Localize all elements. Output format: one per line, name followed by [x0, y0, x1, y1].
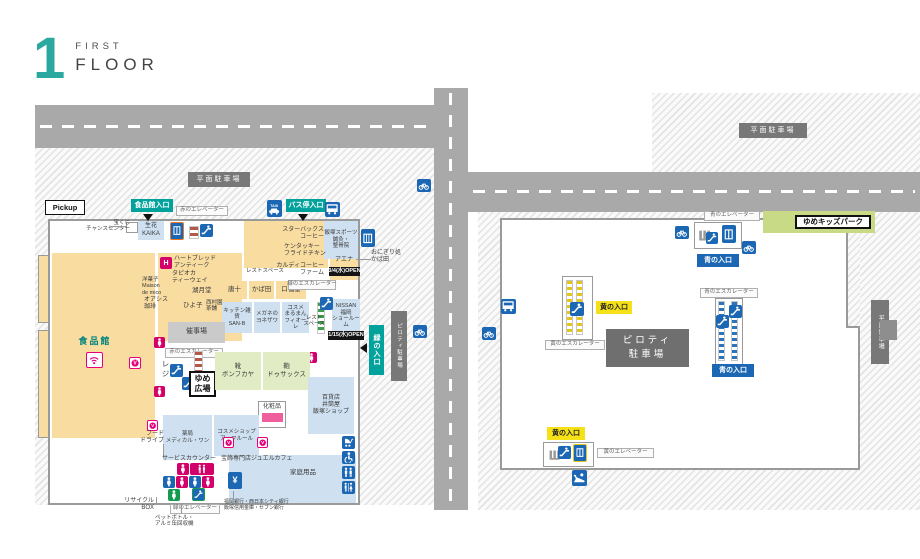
label-recyclebox: リサイクル BOX	[118, 498, 154, 511]
parking-label-west-text: 平面駐車場	[197, 176, 242, 184]
yume-plaza-text: ゆめ 広場	[195, 374, 211, 393]
pickup-label: Pickup	[45, 200, 85, 215]
atm-icon-glyph: ¥	[232, 476, 237, 485]
structure-box	[880, 320, 897, 340]
store-dusacks-text: 鞄 ドゥサックス	[267, 363, 306, 378]
entrance-green-text: 緑の入口	[373, 334, 380, 366]
ramp-icon	[572, 470, 587, 486]
open-badge-aena-text: 3/4(水)OPEN	[328, 269, 360, 275]
store-nissan-text: NISSAN 福岡 ショールーム	[332, 303, 360, 329]
label-oasis: オアシス 珈琲	[144, 297, 176, 310]
kids-park-label-text: ゆめキッズパーク	[803, 218, 863, 226]
toilet-icon	[342, 481, 355, 494]
floor-title-first: FIRST	[75, 41, 159, 52]
entrance-blue-north-text: 青の入口	[704, 257, 732, 264]
floor-title-floor: FLOOR	[75, 55, 159, 75]
green-elevator-icon	[192, 488, 205, 501]
label-heartbread: ハートブレッド アンティーク	[174, 256, 224, 269]
building-notch	[846, 233, 860, 328]
entrance-foodhall-text: 食品館入口	[135, 202, 170, 209]
wheelchair-icon	[342, 451, 355, 464]
food-hall-label: 食品館	[72, 336, 118, 348]
parking-label-northeast: 平面駐車場	[739, 123, 807, 138]
heartbread-logo: H	[160, 257, 172, 269]
label-jewelcafe: 宝飾専門店ジュエルカフェ	[221, 456, 293, 464]
bicycle-icon	[675, 226, 689, 239]
parking-label-northeast-text: 平面駐車場	[751, 127, 796, 135]
piloti-parking-label: ピロティ 駐車場	[606, 329, 689, 367]
label-heartbread-text: ハートブレッド アンティーク	[174, 256, 224, 270]
yellow-escalator-label: 黄のエスカレーター	[545, 340, 605, 350]
service-icon	[190, 463, 214, 475]
piloti-parking-label-side: ピロティ駐車場	[391, 311, 407, 381]
v-mark-icon	[129, 357, 141, 369]
label-recyclebox-text: リサイクル BOX	[118, 498, 154, 512]
label-fooddrive-text: フード ドライブ	[130, 431, 164, 445]
parking-label-west: 平面駐車場	[188, 172, 250, 187]
label-household: 家庭用品	[281, 469, 325, 478]
store-dusacks: 鞄 ドゥサックス	[263, 352, 310, 390]
service-icon	[154, 386, 165, 397]
connector-line	[110, 226, 126, 227]
red-elevator-label-text: 赤のエレベーター	[180, 208, 224, 214]
entrance-arrow	[360, 343, 367, 353]
entrance-busstop: バス停入口	[286, 199, 326, 212]
store-nissan: NISSAN 福岡 ショールーム	[332, 299, 360, 333]
piloti-parking-label-side-text: ピロティ駐車場	[396, 323, 402, 369]
service-icon	[163, 476, 175, 488]
label-restspace-1-text: レストスペース	[246, 268, 294, 274]
road-west	[35, 105, 434, 148]
store-kaika: 生花 KAIKA	[138, 221, 164, 240]
open-badge-nissan-text: 1/15(水)OPEN	[328, 333, 363, 339]
blue-elevator-label-text: 青のエレベーター	[710, 213, 754, 219]
escalator-icon	[170, 364, 183, 377]
store-yonezawa: メガネの ヨネザワ	[254, 302, 280, 333]
connector-line	[356, 259, 371, 260]
label-nishimuraen: 西村園 茶舗	[206, 300, 230, 313]
entrance-foodhall: 食品館入口	[131, 199, 173, 212]
label-kfc: ケンタッキー フライドチキン	[284, 244, 332, 257]
yellow-escalator-label-text: 黄のエスカレーター	[550, 342, 600, 348]
red-elevator-label: 赤のエレベーター	[176, 206, 228, 216]
road-center-line	[449, 93, 452, 505]
label-restspace-2-text: レスト スペース	[301, 315, 327, 328]
food-hall-label-text: 食品館	[72, 336, 118, 347]
service-icon	[177, 463, 189, 475]
entrance-blue-south-text: 青の入口	[719, 367, 747, 374]
stroller-icon	[342, 436, 355, 449]
entrance-yellow-south-text: 黄の入口	[552, 430, 580, 437]
register-label-text: レジ	[158, 360, 169, 379]
store-izutsuya: 百貨店 井筒屋 飯塚ショップ	[308, 377, 354, 434]
label-maison: 洋菓子 Maison de mico	[142, 277, 182, 296]
escalator-icon	[729, 305, 742, 318]
store-yonezawa-text: メガネの ヨネザワ	[256, 311, 278, 324]
v-mark-icon	[147, 420, 158, 431]
yume-plaza: ゆめ 広場	[189, 371, 216, 397]
service-icon	[176, 476, 188, 488]
bus-icon	[501, 299, 516, 314]
label-kfc-text: ケンタッキー フライドチキン	[284, 244, 332, 258]
store-medicalone-text: 薬局 メディカル・ワン	[166, 431, 210, 444]
label-banks-text: 福岡銀行・西日本シティ銀行 飯塚信用金庫・セブン銀行	[224, 500, 302, 512]
store-izutsuya-text: 百貨店 井筒屋 飯塚ショップ	[313, 395, 349, 416]
free-wifi-icon	[86, 352, 103, 368]
escalator-icon	[706, 232, 718, 244]
label-kogetsudo: 湖月堂	[192, 287, 222, 295]
label-onigiri-text: おにぎり処 かば田	[371, 250, 415, 264]
store-kabata-text: かば田	[252, 286, 272, 294]
connector-line	[181, 505, 182, 514]
escalator-icon	[200, 224, 213, 237]
floor-title: 1 FIRST FLOOR	[33, 33, 159, 85]
restroom-icon	[342, 466, 355, 479]
entrance-busstop-text: バス停入口	[289, 202, 324, 209]
bicycle-icon	[742, 241, 756, 254]
label-restspace-1: レストスペース	[246, 268, 294, 276]
yellow-elevator-icon	[573, 444, 587, 462]
event-hall: 催事場	[168, 322, 225, 343]
label-onigiri: おにぎり処 かば田	[371, 250, 415, 263]
escalator-icon	[570, 302, 584, 316]
yellow-elevator-label-text: 黄のエレベーター	[603, 450, 647, 456]
red-escalator-entry-shaft	[189, 226, 199, 239]
open-badge-aena: 3/4(水)OPEN	[329, 267, 360, 276]
label-restspace-2: レスト スペース	[301, 315, 327, 328]
taxi-icon	[267, 200, 282, 217]
cosmetics-brand-badge	[262, 413, 283, 422]
service-icon	[154, 337, 165, 348]
floor-number: 1	[33, 33, 65, 85]
atm-icon: ¥	[228, 472, 242, 489]
service-icon	[202, 476, 214, 488]
pickup-label-text: Pickup	[53, 204, 78, 212]
blue-escalator-label-text: 青のエスカレーター	[704, 290, 754, 296]
label-cosmetics: 化粧品	[258, 404, 286, 412]
connector-line	[156, 497, 157, 505]
open-badge-nissan: 1/15(水)OPEN	[328, 331, 364, 340]
label-oasis-text: オアシス 珈琲	[144, 297, 176, 311]
service-icon	[168, 489, 180, 501]
store-bonfukaya: 靴 ボンフカヤ	[215, 352, 261, 390]
heartbread-logo-glyph: H	[163, 260, 168, 267]
label-starbucks-text: スターバックス コーヒー	[268, 227, 324, 241]
label-fooddrive: フード ドライブ	[130, 431, 164, 444]
v-mark-icon	[223, 437, 234, 448]
entrance-yellow-mid: 黄の入口	[596, 301, 632, 314]
road-center-line	[473, 190, 915, 193]
road-center	[434, 88, 468, 510]
label-petbottle-text: ペットボトル・ アルミ缶回収機	[155, 515, 207, 528]
red-elevator-icon	[170, 222, 184, 240]
entrance-arrow	[143, 214, 153, 221]
entrance-yellow-mid-text: 黄の入口	[600, 304, 628, 311]
store-kaika-text: 生花 KAIKA	[142, 223, 160, 237]
label-nishimuraen-text: 西村園 茶舗	[206, 300, 230, 313]
label-aena: アエナ	[331, 257, 357, 266]
floor-map: 1 FIRST FLOOR 平面駐車場平面駐車場生花 KAIKA飯塚スポーツ 鍼…	[0, 0, 920, 559]
label-maison-text: 洋菓子 Maison de mico	[142, 277, 182, 296]
escalator-icon	[716, 315, 729, 328]
v-mark-icon	[257, 437, 268, 448]
connector-line	[163, 444, 164, 456]
yellow-elevator-label: 黄のエレベーター	[597, 448, 654, 458]
store-medicalone: 薬局 メディカル・ワン	[163, 415, 212, 460]
escalator-icon	[320, 297, 333, 310]
entrance-green: 緑の入口	[369, 325, 384, 375]
kids-park-label: ゆめキッズパーク	[795, 215, 871, 229]
bus-icon	[325, 202, 340, 217]
bicycle-icon	[417, 179, 431, 192]
label-petbottle: ペットボトル・ アルミ缶回収機	[155, 515, 207, 528]
piloti-parking-label-text: ピロティ 駐車場	[623, 334, 672, 363]
blue-elevator-label: 青のエレベーター	[704, 211, 760, 221]
store-kabata: かば田	[249, 281, 274, 299]
entrance-yellow-south: 黄の入口	[547, 427, 585, 440]
label-cosmetics-text: 化粧品	[258, 404, 286, 411]
label-kogetsudo-text: 湖月堂	[192, 287, 222, 295]
label-banks: 福岡銀行・西日本シティ銀行 飯塚信用金庫・セブン銀行	[224, 500, 302, 513]
entrance-blue-north: 青の入口	[697, 254, 739, 267]
entrance-arrow	[298, 214, 308, 221]
store-afleur: コスメショップ ア・フルール	[214, 415, 259, 456]
entrance-blue-south: 青の入口	[712, 364, 754, 377]
label-starbucks: スターバックス コーヒー	[268, 227, 324, 240]
connector-line	[233, 491, 234, 499]
blue-escalator-shaft	[718, 301, 725, 361]
blue-escalator-label: 青のエスカレーター	[700, 288, 758, 298]
service-icon	[189, 476, 201, 488]
locker-icon	[361, 229, 375, 247]
store-karajuu-text: 唐十	[228, 286, 241, 294]
label-jewelcafe-text: 宝飾専門店ジュエルカフェ	[221, 456, 293, 463]
store-karajuu: 唐十	[222, 281, 247, 299]
green-escalator-label-text: 緑のエスカレーター	[287, 282, 337, 288]
event-hall-text: 催事場	[186, 328, 207, 336]
label-household-text: 家庭用品	[281, 469, 325, 477]
bicycle-icon	[413, 325, 427, 338]
green-elevator-label-text: 緑のエレベーター	[173, 506, 217, 512]
escalator-icon	[558, 446, 571, 459]
green-escalator-label: 緑のエスカレーター	[288, 280, 336, 290]
label-aena-text: アエナ	[331, 257, 357, 264]
bicycle-icon	[482, 327, 496, 340]
green-elevator-label: 緑のエレベーター	[170, 504, 220, 514]
road-east	[468, 172, 920, 212]
store-bonfukaya-text: 靴 ボンフカヤ	[222, 363, 254, 378]
road-center-line	[40, 125, 429, 128]
blue-elevator-icon	[722, 225, 736, 243]
